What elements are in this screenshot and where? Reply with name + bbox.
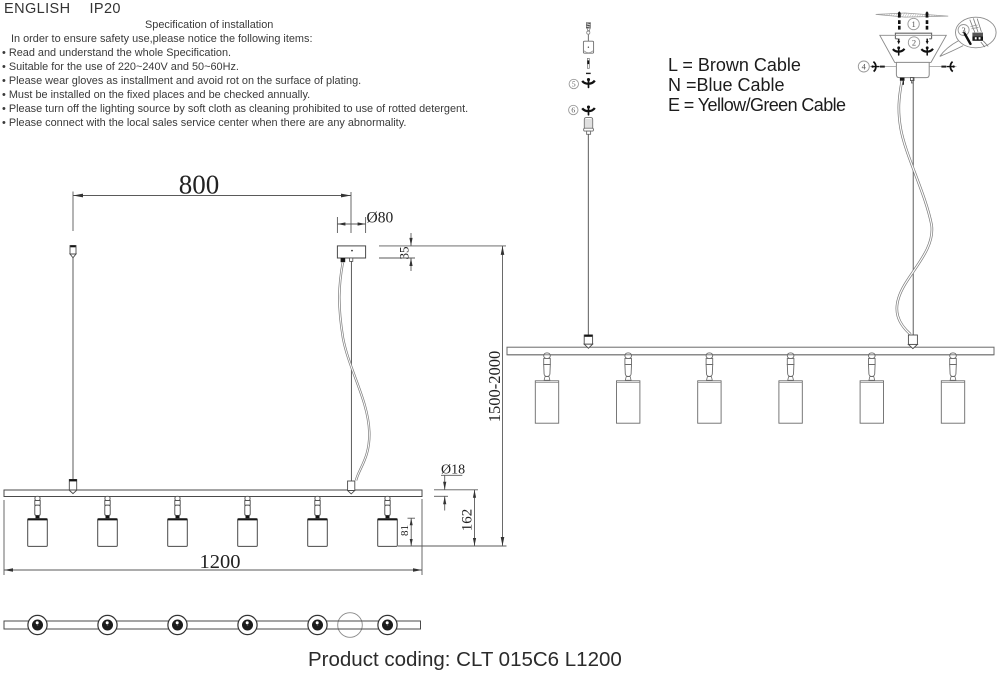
svg-text:35: 35	[397, 247, 412, 260]
svg-text:800: 800	[179, 170, 220, 200]
svg-text:5: 5	[572, 80, 576, 89]
svg-text:1500-2000: 1500-2000	[485, 351, 504, 423]
svg-text:6: 6	[571, 106, 575, 115]
svg-text:162: 162	[460, 509, 476, 532]
svg-text:1200: 1200	[200, 551, 241, 573]
svg-text:Ø18: Ø18	[441, 463, 465, 478]
svg-text:2: 2	[912, 37, 916, 47]
svg-text:81: 81	[399, 525, 411, 536]
svg-text:1: 1	[911, 19, 915, 29]
svg-text:4: 4	[862, 61, 867, 71]
svg-text:Ø80: Ø80	[367, 210, 394, 227]
